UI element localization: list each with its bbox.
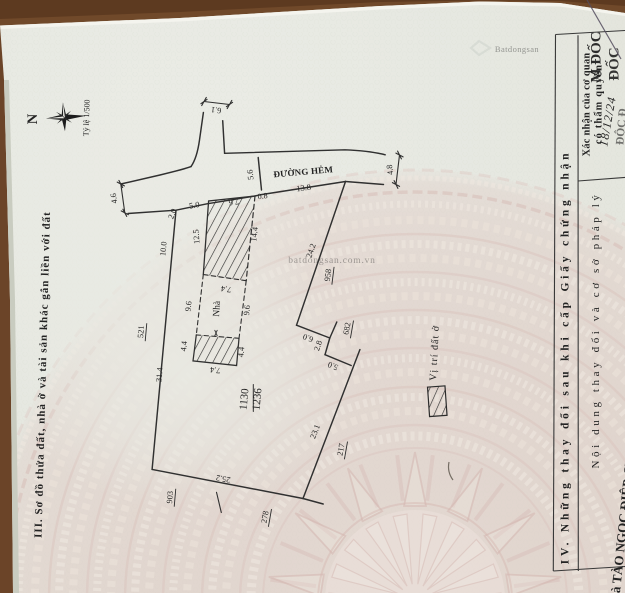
svg-text:1130: 1130 (238, 387, 252, 410)
svg-text:Batdongsan: Batdongsan (495, 44, 539, 54)
svg-text:4.4: 4.4 (179, 340, 189, 352)
svg-text:batdongsan.com.vn: batdongsan.com.vn (288, 256, 375, 266)
svg-text:12.5: 12.5 (192, 229, 202, 244)
svg-text:903: 903 (165, 491, 175, 504)
svg-text:14.4: 14.4 (249, 226, 260, 242)
svg-text:M ĐỐC: M ĐỐC (587, 31, 605, 82)
svg-text:31.4: 31.4 (154, 366, 164, 382)
svg-text:ĐỐC: ĐỐC (605, 47, 623, 80)
svg-text:4.6: 4.6 (109, 193, 120, 205)
svg-text:9.6: 9.6 (183, 301, 193, 312)
svg-text:Nhà: Nhà (212, 300, 223, 317)
svg-text:Nội dung thay đổi và cơ sở phá: Nội dung thay đổi và cơ sở pháp lý (590, 191, 602, 468)
svg-text:4.4: 4.4 (236, 346, 246, 358)
svg-text:9.6: 9.6 (242, 305, 252, 316)
svg-text:Tỷ lệ 1/500: Tỷ lệ 1/500 (81, 99, 91, 136)
svg-text:6.1: 6.1 (210, 105, 221, 115)
svg-text:N: N (25, 113, 41, 124)
svg-text:958: 958 (323, 268, 333, 281)
svg-text:7.6: 7.6 (228, 197, 240, 207)
svg-text:521: 521 (136, 325, 146, 338)
svg-text:IV. Những thay đổi sau khi cấp: IV. Những thay đổi sau khi cấp Giấy chứn… (559, 150, 572, 565)
svg-text:0.8: 0.8 (257, 191, 268, 201)
svg-text:10.0: 10.0 (158, 241, 168, 256)
svg-text:7.4: 7.4 (209, 365, 221, 375)
svg-text:1236: 1236 (251, 387, 265, 410)
svg-text:4.8: 4.8 (385, 164, 395, 175)
svg-text:5.6: 5.6 (245, 169, 255, 180)
